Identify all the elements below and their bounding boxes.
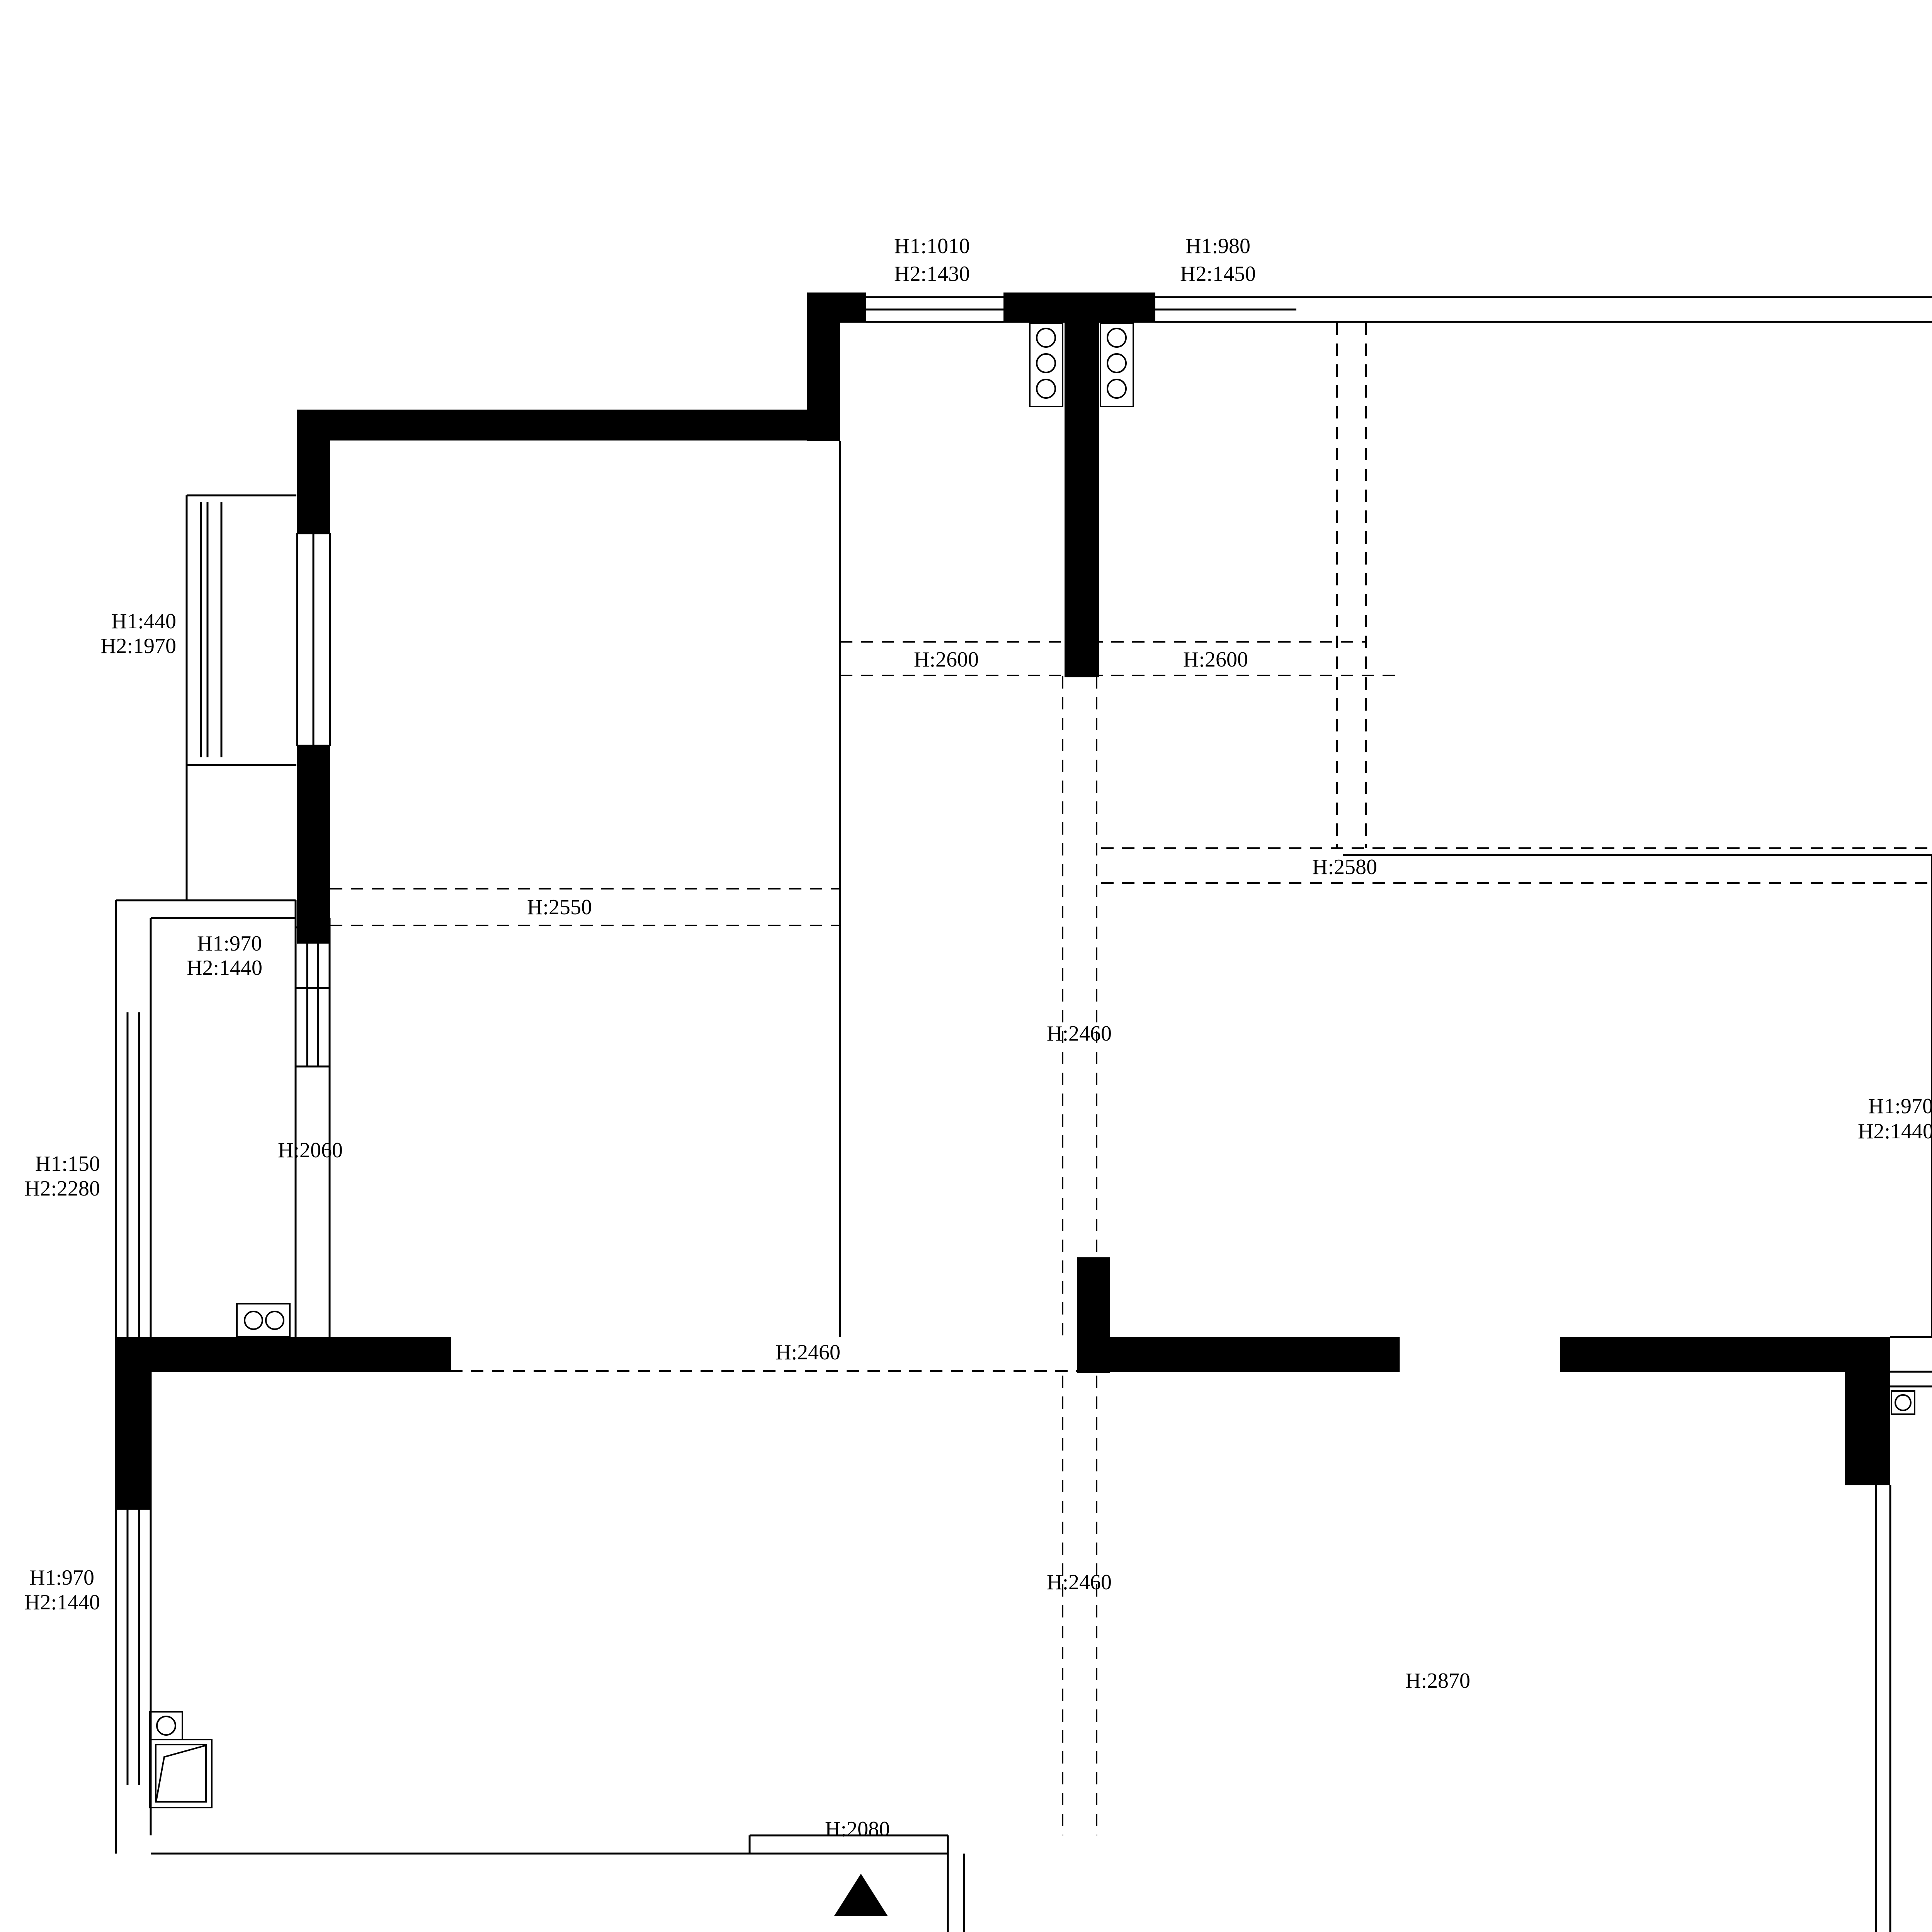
wall-segment: [1077, 1337, 1399, 1372]
entry-arrow-icon: [834, 1874, 888, 1916]
wall-segment: [1561, 1337, 1845, 1372]
window-top-right: [1155, 297, 1296, 322]
annotation-win-left-upper-l2: H2:1440: [187, 956, 262, 980]
annotation-h2460-mid: H:2460: [776, 1340, 840, 1364]
fixtures: [150, 323, 1915, 1808]
window-top-left: [866, 297, 1003, 322]
annotation-win-right-mid-l2: H2:1440: [1858, 1119, 1932, 1143]
annotation-win-left-upper-l1: H1:970: [197, 932, 262, 956]
wall-segment: [1003, 293, 1155, 323]
dashed-ceiling-lines: [330, 323, 1932, 1932]
wall-segment: [297, 410, 330, 533]
annotation-h2550: H:2550: [527, 895, 592, 919]
annotation-win-left-bottom-l1: H1:970: [29, 1566, 94, 1590]
floor-drain: [150, 1712, 182, 1740]
annotation-win-top-right-l2: H2:1450: [1180, 262, 1256, 286]
wall-segment: [1065, 323, 1099, 676]
balcony-left-outline: [116, 495, 296, 918]
wall-segment: [297, 410, 840, 440]
riser-shaft-right: [1100, 323, 1133, 406]
annotation-h2460-center: H:2460: [1047, 1022, 1112, 1046]
dashed-line: [1337, 323, 1366, 848]
wall-segment: [116, 1337, 450, 1372]
annotation-win-top-left-l2: H2:1430: [894, 262, 970, 286]
cad-canvas[interactable]: H1:1010 H2:1430 H1:980 H2:1450 H1:440 H2…: [0, 0, 1932, 1932]
annotation-h2600-left: H:2600: [914, 648, 979, 672]
annotation-h2600-right: H:2600: [1183, 648, 1248, 672]
wall-segment: [1845, 1337, 1890, 1485]
wall-segment: [297, 746, 330, 944]
wall-segments: [116, 293, 1890, 1932]
wall-segment: [116, 1372, 151, 1510]
wall-band-right-thin: [450, 676, 1932, 1372]
shower-tray: [150, 1740, 212, 1808]
riser-shaft-left: [1030, 323, 1063, 406]
outline-foyer: [151, 1835, 1804, 1932]
stove-fixture: [237, 1304, 290, 1337]
annotation-balcony-left-l2: H2:1970: [100, 634, 176, 658]
outline-top-right-room: [1296, 297, 1932, 855]
annotation-win-left-bottom-l2: H2:1440: [24, 1590, 100, 1614]
wall-outlines: [116, 297, 1932, 1932]
annotation-balcony-left-l1: H1:440: [111, 609, 176, 633]
annotation-win-top-left-l1: H1:1010: [894, 234, 970, 258]
annotation-h2060: H:2060: [278, 1138, 343, 1162]
annotation-win-left-lower-l1: H1:150: [35, 1152, 100, 1176]
annotation-h2580: H:2580: [1312, 855, 1377, 879]
annotation-win-left-lower-l2: H2:2280: [24, 1177, 100, 1201]
wall-bedroom2-left: [296, 900, 330, 1337]
annotation-win-right-mid-l1: H1:970: [1868, 1094, 1932, 1118]
annotation-h2460-bottom: H:2460: [1047, 1570, 1112, 1594]
annotation-h2080: H:2080: [825, 1817, 890, 1841]
corner-fixture: [1891, 1391, 1915, 1414]
annotation-h2870: H:2870: [1405, 1669, 1470, 1693]
window-bedroom1-left: [297, 533, 330, 746]
annotation-win-top-right-l1: H1:980: [1185, 234, 1250, 258]
